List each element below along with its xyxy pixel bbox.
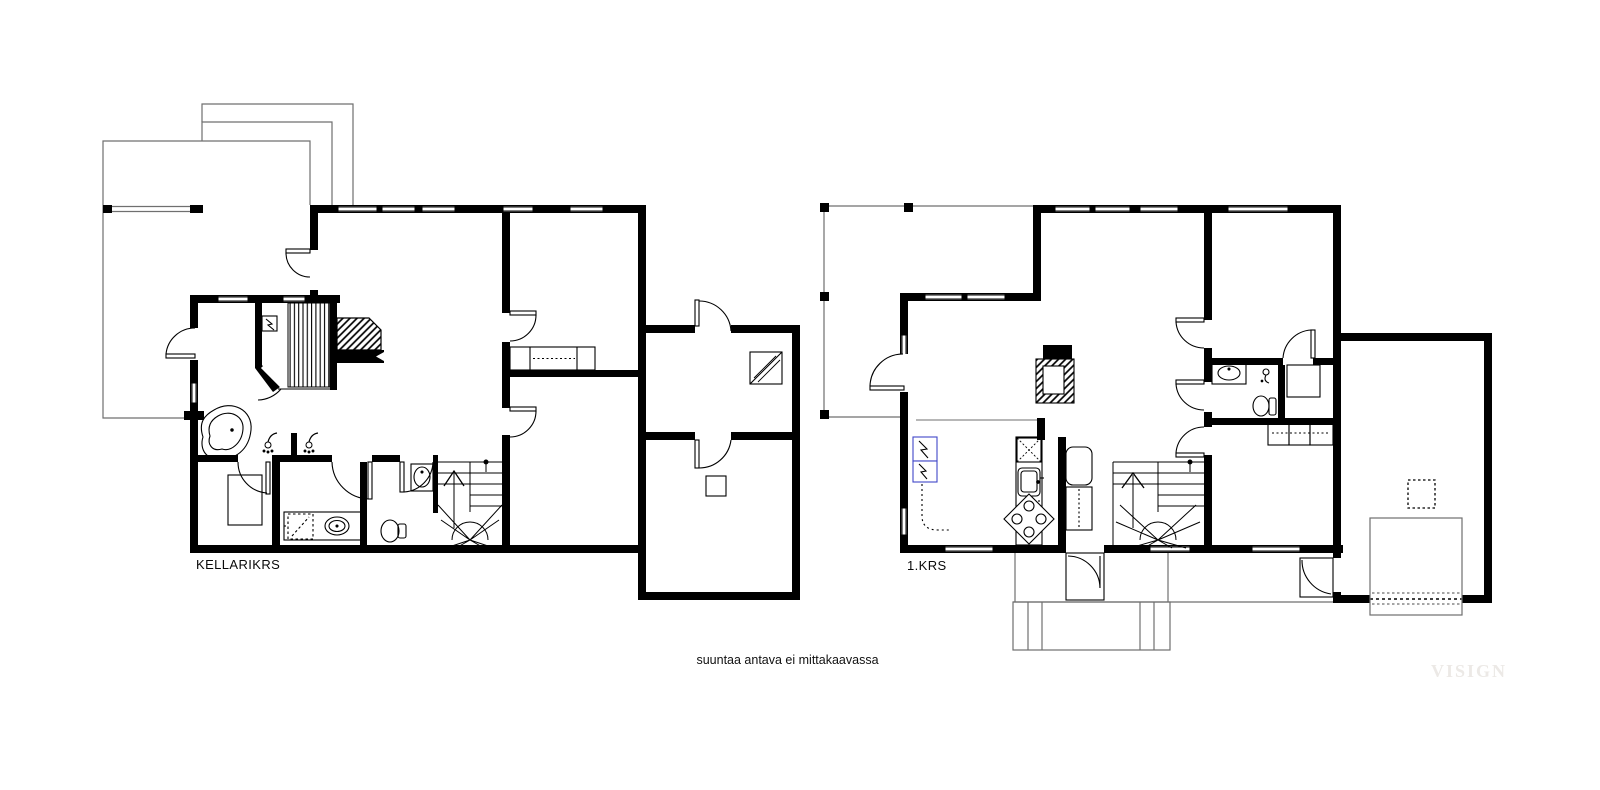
basement-extension: [706, 352, 782, 496]
faucet-icon: [1261, 369, 1269, 383]
toilet-icon: [381, 520, 399, 542]
sauna-stove-icon: [262, 316, 277, 331]
first-floor-label: 1.KRS: [907, 558, 947, 573]
laundry-counter: [284, 512, 364, 540]
fridge-icon: [913, 437, 937, 461]
wardrobe-row: [1268, 422, 1333, 445]
basement-right-rooms: [510, 347, 595, 370]
first-floor-stairs: [1113, 460, 1204, 548]
first-floor-terrace-outline: [824, 206, 1033, 417]
basement-label: KELLARIKRS: [196, 557, 280, 572]
first-floor-plan: [820, 203, 1492, 650]
chimney: [337, 318, 384, 363]
basement-stairs: [438, 460, 502, 548]
electrical-panel-icon: [750, 352, 782, 384]
utility-box: [706, 476, 726, 496]
floorplan-page: { "floors": [ { "id": "kellarikrs", "lab…: [0, 0, 1600, 790]
car-outline: [1370, 518, 1462, 615]
closet: [1287, 365, 1320, 397]
floorplans-drawing: [0, 0, 1600, 790]
tall-cabinet: [1066, 447, 1092, 530]
first-floor-bathroom: [1212, 362, 1333, 445]
disclaimer-caption: suuntaa antava ei mittakaavassa: [655, 653, 920, 667]
garage: [1370, 480, 1462, 615]
entrance-steps: [1013, 553, 1333, 650]
wc: [381, 464, 433, 542]
terrace-pillars: [103, 205, 204, 420]
washroom: [201, 406, 318, 458]
shower-icon: [263, 433, 277, 453]
stove-icon: [1004, 494, 1054, 544]
basement-walls: [190, 205, 800, 600]
shower-icon: [304, 433, 318, 453]
freezer-icon: [913, 461, 937, 482]
toilet-icon: [1253, 396, 1276, 416]
first-floor-walls: [900, 205, 1492, 603]
visign-watermark: VISIGN: [1431, 661, 1507, 682]
kitchen-sink-icon: [1018, 468, 1044, 496]
wc-sink-icon: [414, 467, 430, 487]
garage-dashed-box: [1408, 480, 1435, 508]
washer-icon: [288, 514, 313, 539]
sauna-benches: [288, 303, 330, 387]
basement-plan: [103, 104, 800, 600]
kitchen-counter-line: [922, 484, 950, 530]
fireplace: [1036, 345, 1074, 403]
first-floor-windows: [901, 206, 1300, 552]
bathroom-sink-icon: [1212, 362, 1246, 384]
